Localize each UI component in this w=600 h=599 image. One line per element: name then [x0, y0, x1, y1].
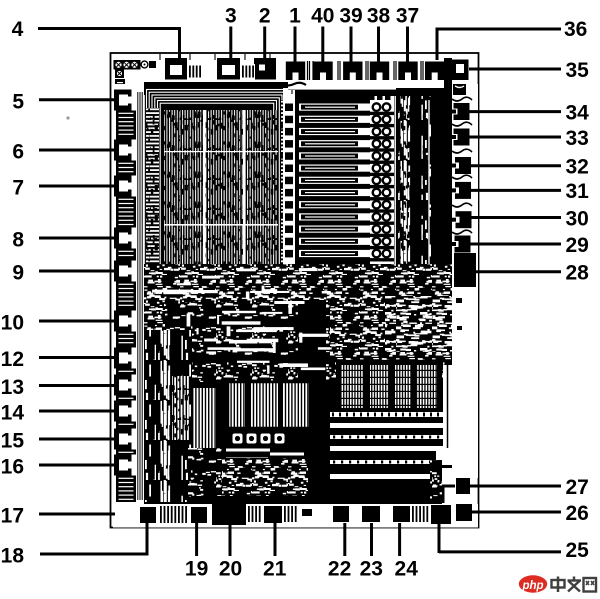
svg-text:19: 19	[185, 558, 208, 581]
svg-text:37: 37	[396, 5, 419, 28]
svg-text:1: 1	[289, 5, 301, 28]
svg-text:8: 8	[12, 229, 24, 252]
svg-text:13: 13	[1, 376, 24, 399]
svg-text:33: 33	[566, 127, 589, 150]
svg-text:28: 28	[566, 262, 590, 285]
svg-text:4: 4	[12, 18, 24, 41]
svg-text:34: 34	[566, 101, 590, 124]
svg-text:40: 40	[311, 5, 334, 28]
svg-text:27: 27	[566, 476, 589, 499]
svg-text:29: 29	[566, 234, 589, 257]
svg-text:39: 39	[339, 5, 362, 28]
svg-text:5: 5	[12, 90, 24, 113]
svg-text:31: 31	[566, 180, 590, 203]
svg-text:36: 36	[564, 18, 587, 41]
svg-text:38: 38	[367, 5, 391, 28]
svg-text:22: 22	[328, 558, 351, 581]
svg-text:18: 18	[1, 545, 25, 568]
svg-text:30: 30	[566, 207, 589, 230]
svg-text:23: 23	[360, 558, 383, 581]
svg-text:6: 6	[12, 141, 24, 164]
svg-text:14: 14	[1, 402, 25, 425]
svg-text:15: 15	[1, 430, 25, 453]
svg-text:32: 32	[566, 156, 589, 179]
svg-text:7: 7	[12, 177, 24, 200]
svg-text:16: 16	[1, 456, 24, 479]
svg-text:10: 10	[1, 312, 24, 335]
svg-text:24: 24	[395, 558, 419, 581]
svg-text:2: 2	[259, 5, 271, 28]
svg-text:35: 35	[566, 59, 590, 82]
svg-text:21: 21	[263, 558, 287, 581]
svg-text:9: 9	[12, 262, 24, 285]
svg-text:php: php	[521, 580, 543, 592]
svg-text:3: 3	[225, 5, 237, 28]
svg-text:12: 12	[1, 348, 24, 371]
svg-text:26: 26	[566, 502, 589, 525]
svg-text:25: 25	[566, 539, 590, 562]
svg-text:17: 17	[1, 505, 24, 528]
svg-text:20: 20	[219, 558, 242, 581]
